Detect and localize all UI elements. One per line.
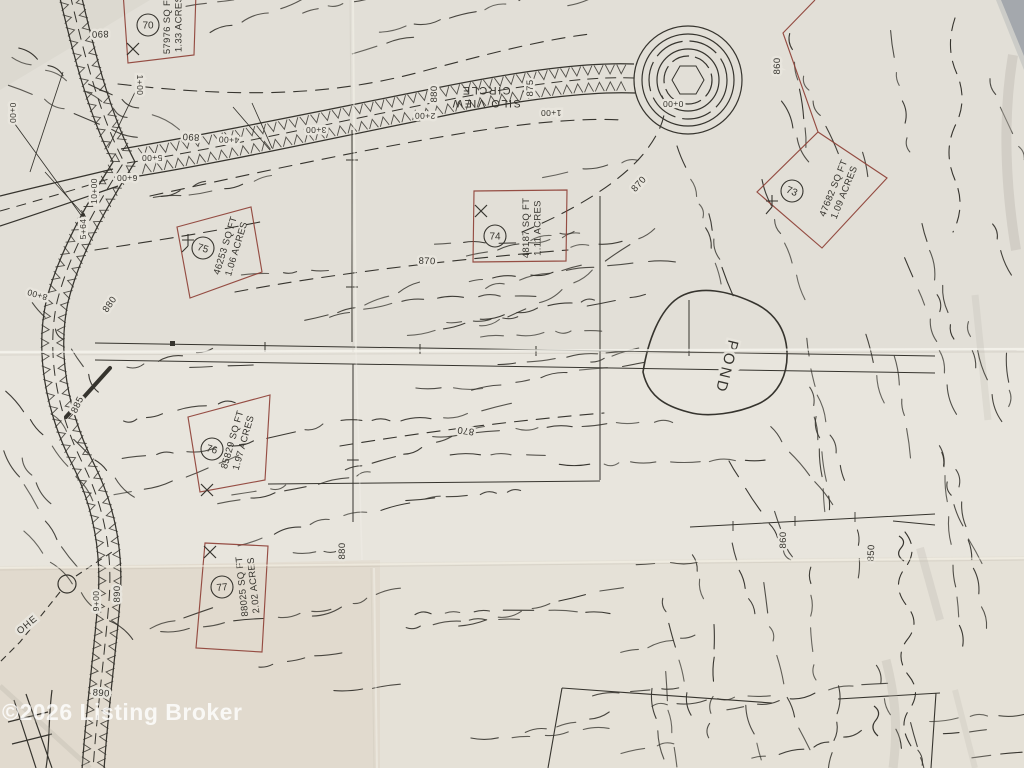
lot-number: 74 xyxy=(489,232,501,243)
station-label: 5+00 xyxy=(142,153,163,163)
contour-label: 880 xyxy=(337,542,348,559)
station-label: 6+00 xyxy=(117,173,138,183)
station-label: 9+00 xyxy=(91,591,101,612)
lot-number: 70 xyxy=(142,21,154,32)
station-label: 3+00 xyxy=(306,125,327,135)
contour-label: 890 xyxy=(112,585,123,602)
plat-map-photo: 8908808758908858808708608708708808608508… xyxy=(0,0,1024,768)
contour-label: 875 xyxy=(525,79,536,96)
contour-label: 870 xyxy=(418,256,435,268)
station-label: 4+00 xyxy=(218,134,239,145)
contour-label: 860 xyxy=(772,57,783,74)
station-label: 1+00 xyxy=(541,108,562,118)
station-label: 0+00 xyxy=(8,103,18,124)
station-label: 2+00 xyxy=(414,111,435,121)
lower-band-tint xyxy=(0,556,1024,768)
station-label: 5+64 xyxy=(78,219,88,240)
lot-area-label: 48187 SQ FT1.11 ACRES xyxy=(521,198,544,258)
contour-label: 890 xyxy=(91,28,108,40)
lot-number: 77 xyxy=(216,582,229,594)
road-name-label: SILO VIEWCIRCLE xyxy=(451,84,521,109)
contour-label: 870 xyxy=(456,424,474,437)
upper-fold-tint xyxy=(0,0,1024,352)
station-label: 0+00 xyxy=(663,99,684,109)
contour-label: 890 xyxy=(182,131,200,143)
contour-label: 860 xyxy=(778,531,789,548)
station-label: 10+00 xyxy=(89,178,99,204)
plat-survey-drawing: 8908808758908858808708608708708808608508… xyxy=(0,0,1024,768)
station-label: 1+00 xyxy=(135,75,145,96)
contour-label: 880 xyxy=(429,85,440,102)
contour-label: 890 xyxy=(92,687,110,699)
lot-area-label: 57976 SQ FT1.33 ACRES xyxy=(162,0,185,54)
